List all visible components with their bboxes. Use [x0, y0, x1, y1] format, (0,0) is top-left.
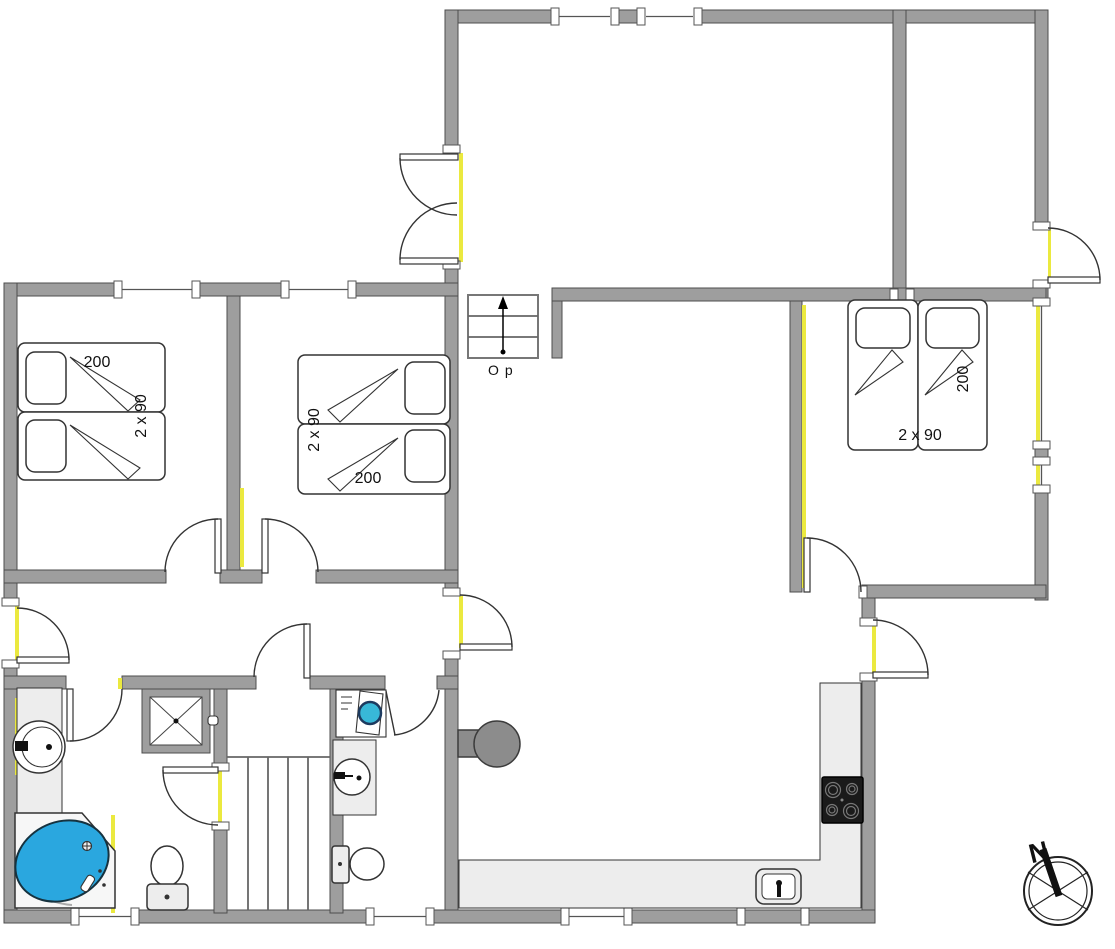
- pillow: [26, 352, 66, 404]
- faucet-icon: [334, 772, 345, 779]
- door-leaf: [400, 154, 458, 160]
- bedroom-left: 200 2 x 90: [18, 343, 165, 480]
- door-jamb-cap: [443, 588, 460, 596]
- washer-drum: [359, 702, 381, 724]
- wall-segment: [352, 283, 458, 296]
- bed-width-label: 2 x 90: [306, 408, 323, 452]
- door-swing-arc: [254, 624, 307, 677]
- door-threshold: [218, 771, 222, 824]
- door-leaf: [1048, 277, 1100, 283]
- door-leaf: [304, 624, 310, 678]
- stairs-up: Op: [468, 295, 538, 378]
- wall-segment: [445, 10, 458, 152]
- stove-dot: [841, 799, 844, 802]
- door-threshold: [459, 153, 463, 262]
- bed-length-label: 200: [955, 366, 972, 393]
- wall-segment: [445, 10, 555, 23]
- wall-segment: [552, 288, 1046, 301]
- wall-segment: [196, 283, 285, 296]
- window-cap: [1033, 441, 1050, 449]
- door-swing-arc: [165, 519, 218, 572]
- door-swing-arc: [807, 538, 861, 592]
- wall-segment: [893, 10, 906, 290]
- window-mullion: [618, 10, 638, 23]
- door-swing-arc: [400, 158, 457, 215]
- wall-segment: [1035, 10, 1048, 228]
- window-cap: [611, 8, 619, 25]
- window-cap: [281, 281, 289, 298]
- pillow: [26, 420, 66, 472]
- door-leaf: [163, 767, 218, 773]
- wall-segment: [214, 689, 227, 770]
- faucet-icon: [15, 741, 28, 751]
- pillow: [405, 362, 445, 414]
- wall-segment: [316, 570, 458, 583]
- toilet-bowl: [151, 846, 183, 886]
- shower-handle: [208, 716, 218, 725]
- door-leaf: [262, 519, 268, 573]
- drain-dot: [357, 776, 362, 781]
- arrow-base-dot: [501, 350, 506, 355]
- window-cap: [551, 8, 559, 25]
- window-cap: [114, 281, 122, 298]
- wall-joint-cap: [801, 908, 809, 925]
- door-leaf: [386, 691, 395, 735]
- door-swing-arc: [1048, 228, 1100, 280]
- wall-joint-cap: [737, 908, 745, 925]
- wall-segment: [628, 910, 875, 923]
- door-leaf: [215, 519, 221, 573]
- door-swing-arc: [70, 689, 122, 741]
- heater-marker: [118, 678, 122, 689]
- door-jamb-cap: [443, 651, 460, 659]
- wall-segment: [437, 676, 458, 689]
- door-leaf: [873, 672, 928, 678]
- staircase-room: [227, 757, 330, 910]
- wall-segment: [862, 677, 875, 910]
- door-swing-arc: [17, 608, 69, 660]
- stairs-direction-label: Op: [488, 362, 519, 378]
- door-swing-arc: [163, 770, 218, 825]
- floor-plan-drawing: 200 2 x 90 2 x 90 200 200 2 x 90 Op: [0, 0, 1115, 949]
- door-swing-arc: [400, 203, 457, 260]
- window-cap: [637, 8, 645, 25]
- window-cap: [1033, 485, 1050, 493]
- bed-length-label: 200: [84, 354, 111, 371]
- toilet-bowl: [350, 848, 384, 880]
- window-cap: [694, 8, 702, 25]
- wall-segment: [552, 301, 562, 358]
- window-cap: [1033, 298, 1050, 306]
- wall-joint-cap: [906, 289, 914, 301]
- wall-segment: [445, 655, 458, 923]
- wall-segment: [4, 283, 17, 605]
- shower-drain-dot: [174, 719, 179, 724]
- door-threshold: [459, 596, 463, 648]
- wall-segment: [220, 570, 262, 583]
- door-swing-arc: [460, 595, 512, 647]
- window-cap: [1033, 457, 1050, 465]
- wall-joint-cap: [890, 289, 898, 301]
- bed-width-label: 2 x 90: [133, 394, 150, 438]
- window-cap: [366, 908, 374, 925]
- window-sill-marker: [1036, 303, 1040, 443]
- window-cap: [348, 281, 356, 298]
- door-swing-arc: [394, 690, 439, 735]
- door-swing-arc: [873, 620, 928, 675]
- wood-stove-body: [474, 721, 520, 767]
- pillow: [405, 430, 445, 482]
- door-jamb-cap: [212, 822, 229, 830]
- door-jamb-cap: [1033, 222, 1050, 230]
- bedroom-middle: 2 x 90 200: [298, 355, 450, 494]
- window-cap: [71, 908, 79, 925]
- bathroom-small: [332, 690, 386, 883]
- pillow: [856, 308, 910, 348]
- window-cap: [624, 908, 632, 925]
- door-threshold: [1048, 228, 1051, 282]
- door-jamb-cap: [443, 145, 460, 153]
- north-label: N: [1026, 835, 1052, 869]
- wall-segment: [700, 10, 1046, 23]
- wall-segment: [430, 910, 565, 923]
- wall-segment: [4, 676, 66, 689]
- floor-plan: 200 2 x 90 2 x 90 200 200 2 x 90 Op: [0, 0, 1115, 949]
- compass: N: [1024, 835, 1092, 925]
- door-jamb-cap: [860, 618, 877, 626]
- door-leaf: [460, 644, 512, 650]
- door-leaf: [804, 538, 810, 592]
- wall-segment: [227, 296, 240, 570]
- door-threshold: [872, 625, 876, 677]
- window-cap: [192, 281, 200, 298]
- door-leaf: [17, 657, 69, 663]
- wall-segment: [790, 301, 802, 592]
- wall-segment: [1035, 487, 1048, 600]
- bedroom-right: 200 2 x 90: [848, 300, 987, 450]
- wall-segment: [122, 676, 256, 689]
- door-threshold: [15, 606, 19, 661]
- wall-segment: [214, 825, 227, 913]
- wall-segment: [310, 676, 385, 689]
- bed-length-label: 200: [355, 470, 382, 487]
- wall-segment: [4, 910, 75, 923]
- pillow: [926, 308, 979, 348]
- window-sill-marker: [1036, 463, 1040, 486]
- heater-marker: [240, 488, 244, 567]
- window-cap: [131, 908, 139, 925]
- kitchen: [459, 683, 863, 908]
- wood-stove: [458, 721, 520, 767]
- window-cap: [426, 908, 434, 925]
- window-cap: [561, 908, 569, 925]
- door-swing-arc: [265, 519, 318, 572]
- door-jamb-cap: [2, 598, 19, 606]
- wall-segment: [4, 570, 166, 583]
- wall-segment: [862, 585, 1046, 598]
- wall-segment: [4, 283, 118, 296]
- drain-dot: [46, 744, 52, 750]
- toilet-button-dot: [165, 895, 170, 900]
- tub-dot: [102, 883, 106, 887]
- tub-dot: [98, 869, 102, 873]
- toilet-button-dot: [338, 862, 342, 866]
- door-leaf: [400, 258, 458, 264]
- door-leaf: [67, 689, 73, 741]
- kitchen-faucet-head: [776, 880, 782, 886]
- bed-width-label: 2 x 90: [898, 427, 942, 444]
